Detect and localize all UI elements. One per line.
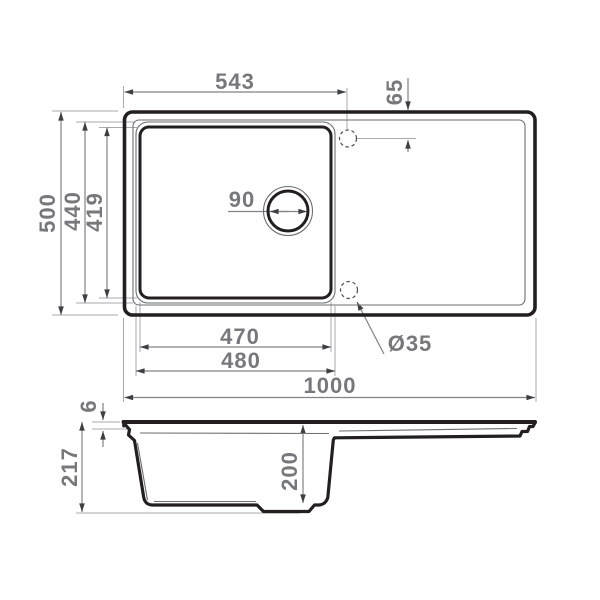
dim-label-200: 200 [277, 451, 302, 491]
bowl-inner-lip-line [140, 433, 329, 434]
drawing-canvas: 543 65 500 440 419 90 470 480 1000 Ø35 6… [0, 0, 600, 600]
dim-label-500: 500 [35, 193, 60, 233]
dim-label-217: 217 [57, 447, 82, 487]
sink-technical-drawing: 543 65 500 440 419 90 470 480 1000 Ø35 6… [0, 0, 600, 600]
dim-label-470: 470 [220, 324, 260, 349]
dim-label-6: 6 [76, 399, 101, 412]
dim-label-543: 543 [215, 69, 255, 94]
dim-label-480: 480 [221, 348, 261, 373]
dim-label-65: 65 [382, 79, 407, 105]
dim-label-90: 90 [229, 187, 255, 212]
dim-label-419: 419 [82, 192, 107, 232]
dim-label-1000: 1000 [304, 373, 357, 398]
dim-label-tap-diameter: Ø35 [388, 331, 433, 356]
